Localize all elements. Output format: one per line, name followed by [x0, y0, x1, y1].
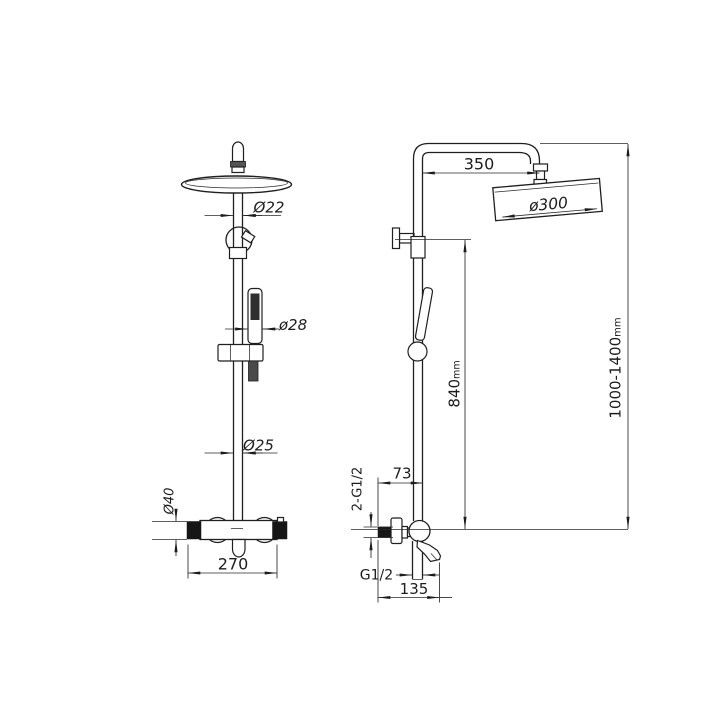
valve-body — [200, 521, 277, 540]
hand-shower-wand-side — [415, 287, 433, 341]
dim-wall-offset: 73 — [378, 465, 423, 527]
label-350: 350 — [464, 155, 495, 174]
bracket-clamp-knob — [241, 231, 254, 243]
dim-inlet-thread: 2-G1/2 — [351, 467, 394, 558]
top-knob — [233, 142, 244, 161]
safety-button — [278, 518, 284, 523]
wall-escutcheon-side — [391, 518, 402, 544]
dim-upper-pipe-diameter: Ø22 — [205, 199, 285, 217]
knob-collar — [231, 162, 246, 168]
label-height-range: 1000-1400mm — [607, 317, 625, 418]
hand-shower-spray-face — [251, 294, 260, 321]
dim-valve-body-diameter: Ø40 — [152, 488, 187, 556]
label-d25: Ø25 — [242, 437, 274, 455]
label-d40: Ø40 — [163, 488, 178, 516]
slider-holder — [218, 345, 263, 362]
head-connector-nut — [534, 164, 548, 171]
label-135: 135 — [400, 580, 429, 598]
valve-body-side — [409, 521, 430, 542]
side-view: ø300 — [351, 144, 628, 580]
inlet-connector-1 — [402, 527, 408, 539]
tub-spout-side — [417, 541, 441, 562]
dim-lower-pipe-diameter: Ø25 — [205, 437, 278, 455]
wall-supply-nipple — [378, 527, 391, 538]
label-g12: G1/2 — [360, 568, 393, 584]
label-d22: Ø22 — [253, 199, 285, 217]
label-d28: ø28 — [278, 316, 307, 334]
dim-bracket-height: 840mm — [395, 240, 471, 530]
label-d300: ø300 — [527, 194, 569, 215]
holder-ring-side — [408, 342, 427, 361]
technical-drawing: Ø22 ø28 Ø25 Ø40 270 — [0, 0, 720, 720]
rain-head-side: ø300 — [493, 178, 602, 220]
side-bracket-flange — [393, 228, 400, 249]
shower-head-disc — [182, 176, 292, 193]
drawing-page: Ø22 ø28 Ø25 Ø40 270 — [0, 0, 720, 720]
head-connector-stem — [537, 171, 545, 180]
temperature-handle — [187, 522, 201, 540]
dim-arm-projection: 350 — [423, 155, 540, 174]
shower-hose-stub — [249, 361, 259, 381]
hand-shower-side — [415, 287, 433, 341]
flow-handle — [273, 522, 288, 540]
wall-bracket-body — [230, 248, 247, 259]
label-270: 270 — [218, 555, 249, 574]
label-2-g12: 2-G1/2 — [351, 467, 366, 511]
label-840: 840mm — [446, 360, 464, 407]
dim-hand-shower-diameter: ø28 — [225, 316, 307, 334]
label-73: 73 — [392, 465, 411, 483]
knob-base — [232, 167, 244, 173]
